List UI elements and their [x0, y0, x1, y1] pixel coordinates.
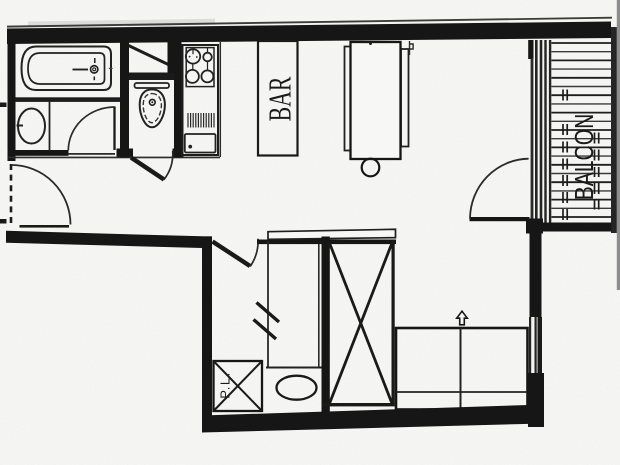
- svg-text:BALCON: BALCON: [571, 114, 600, 201]
- svg-text:P.L.: P.L.: [218, 371, 233, 398]
- svg-text:BAR: BAR: [262, 76, 297, 121]
